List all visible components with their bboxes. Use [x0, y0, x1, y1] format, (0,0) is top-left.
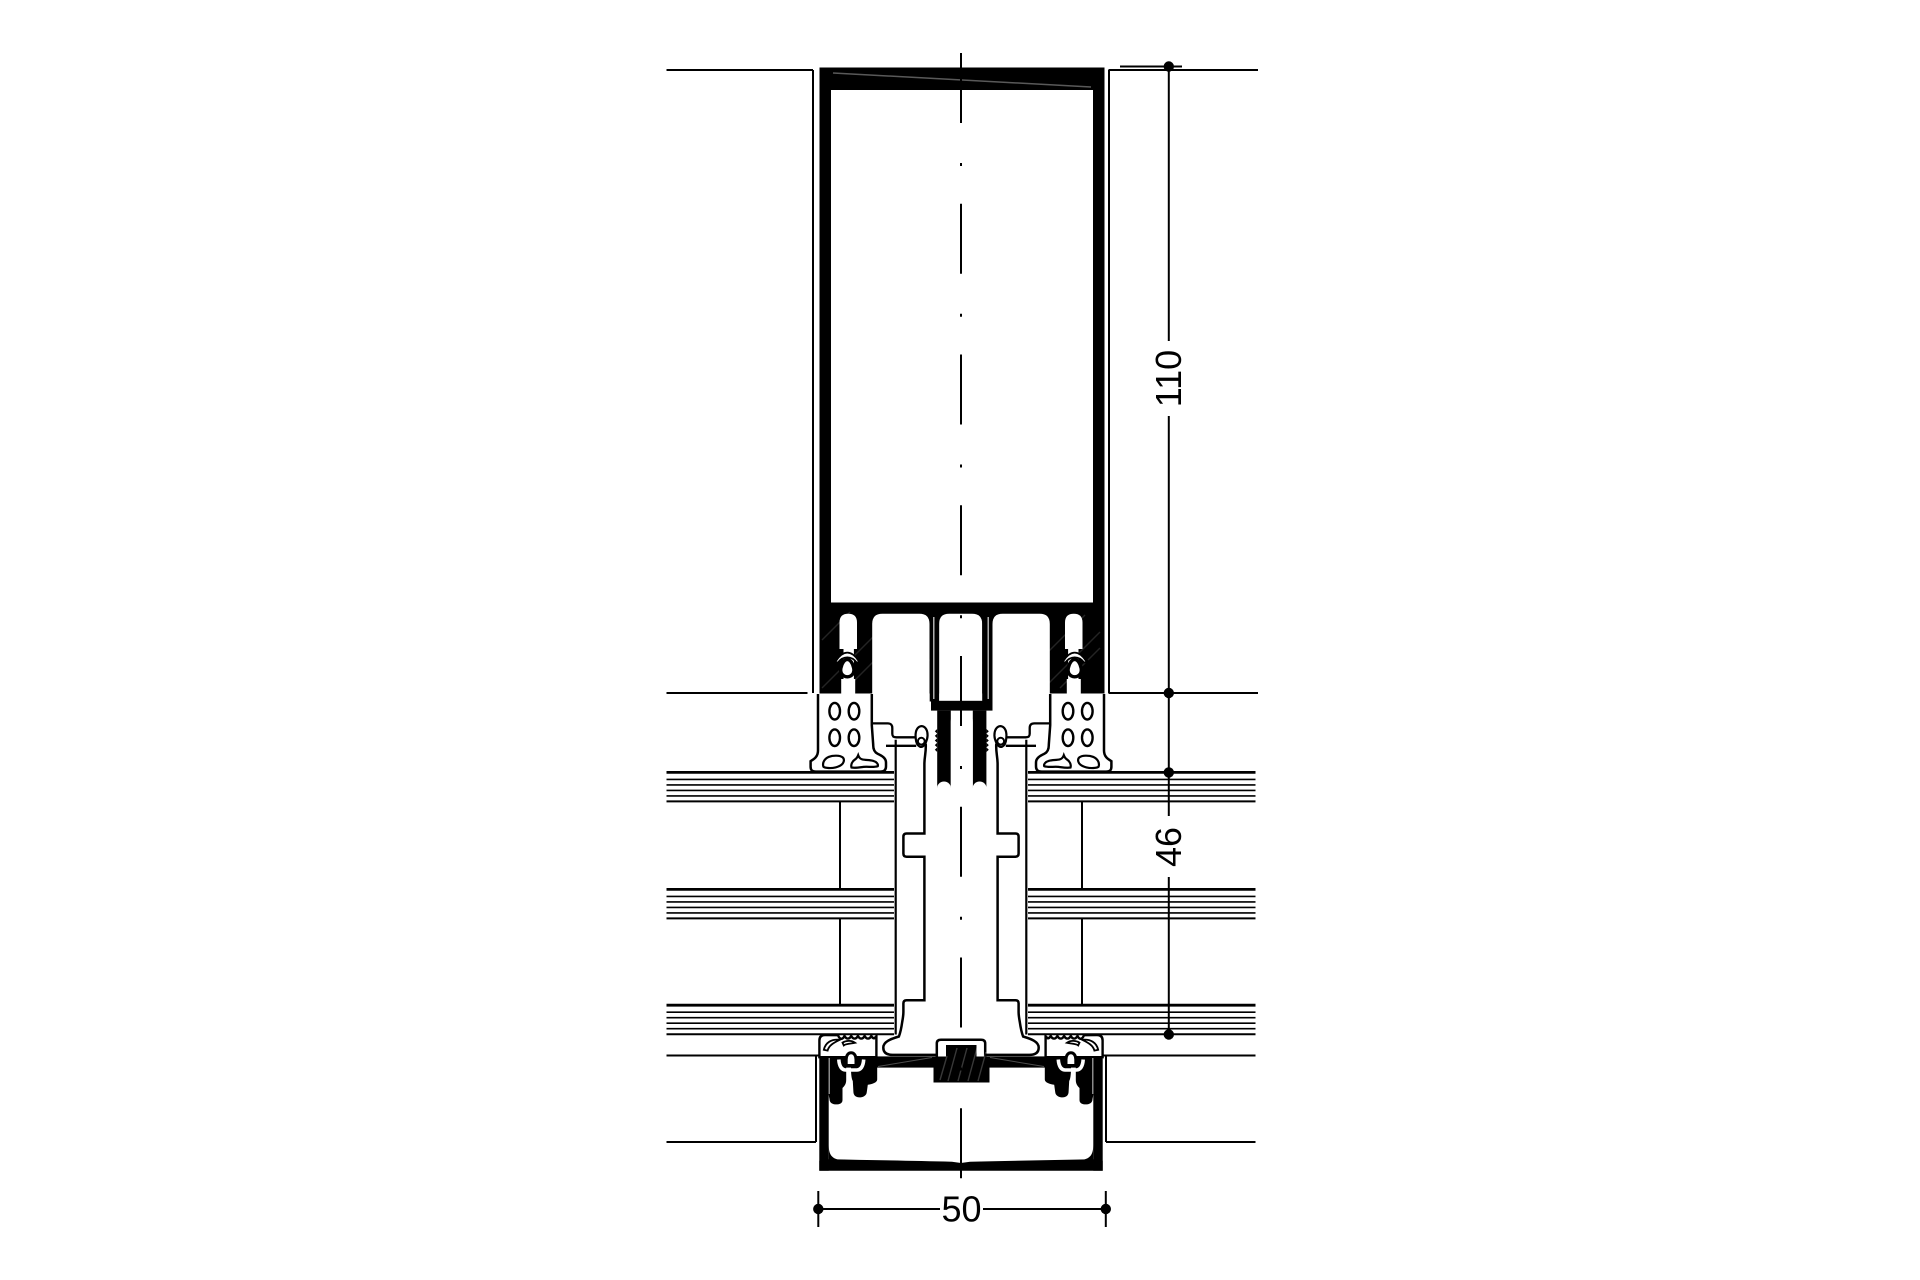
svg-text:50: 50	[941, 1189, 981, 1230]
svg-text:110: 110	[1148, 350, 1189, 407]
svg-text:46: 46	[1148, 827, 1189, 867]
